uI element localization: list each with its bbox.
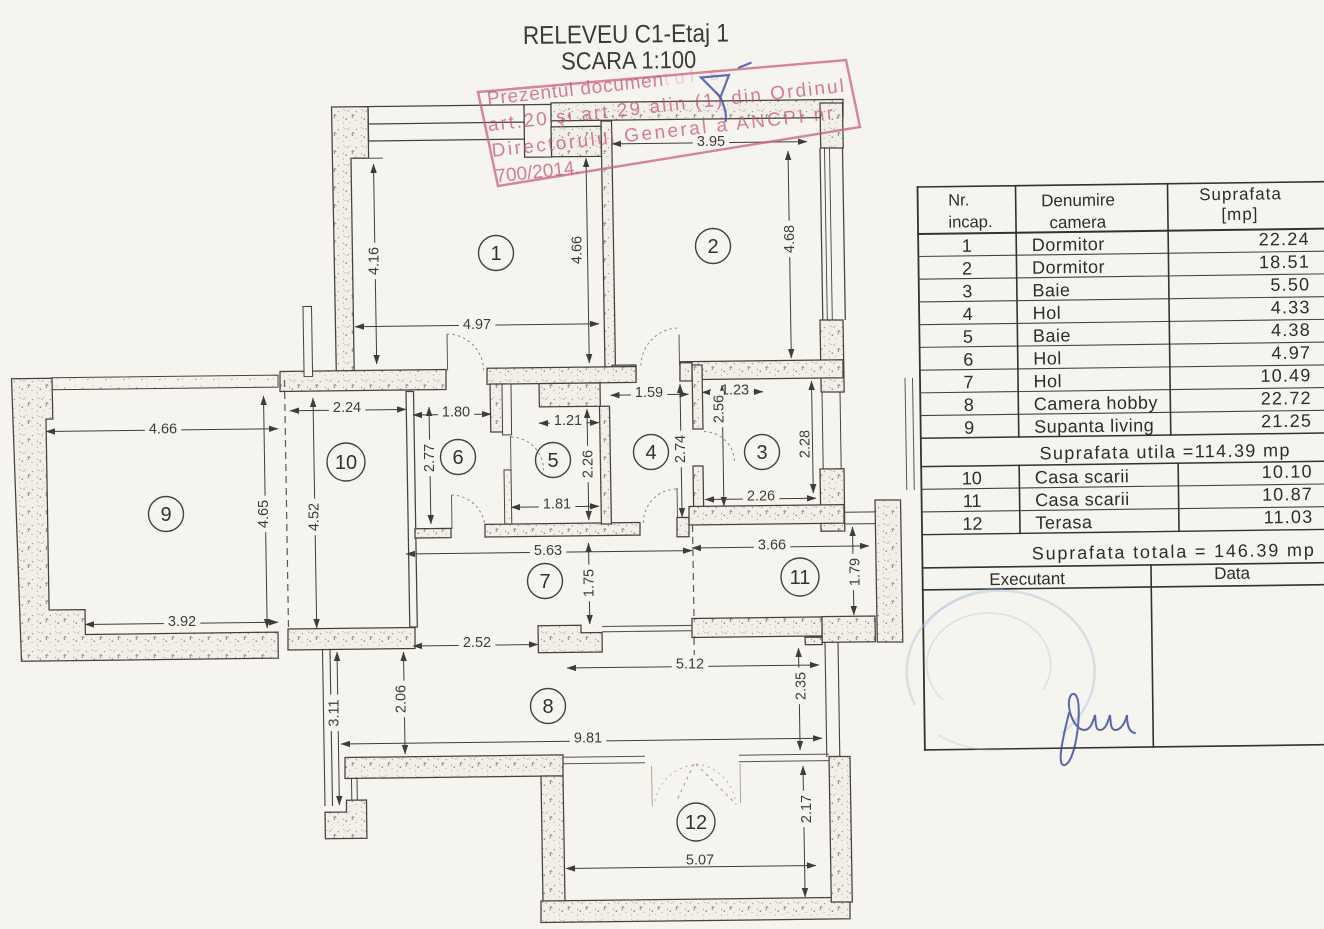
- svg-text:3.92: 3.92: [168, 614, 196, 630]
- svg-text:1.75: 1.75: [582, 569, 598, 597]
- svg-text:Hol: Hol: [1033, 348, 1062, 368]
- svg-text:Denumire: Denumire: [1041, 190, 1115, 210]
- svg-text:3: 3: [756, 442, 767, 464]
- svg-text:22.24: 22.24: [1259, 229, 1310, 250]
- svg-text:2.35: 2.35: [794, 672, 810, 700]
- svg-text:11: 11: [963, 491, 982, 511]
- svg-text:5.63: 5.63: [534, 543, 562, 559]
- svg-text:5.12: 5.12: [676, 657, 704, 673]
- svg-text:3: 3: [962, 281, 972, 301]
- svg-text:7: 7: [963, 372, 973, 392]
- svg-text:camera: camera: [1049, 213, 1106, 233]
- svg-text:4: 4: [645, 442, 656, 464]
- svg-text:2.56: 2.56: [712, 395, 728, 423]
- svg-text:5.50: 5.50: [1270, 274, 1310, 295]
- svg-text:Suprafata totala = 146.39 mp: Suprafata totala = 146.39 mp: [1032, 540, 1314, 564]
- svg-text:Dormitor: Dormitor: [1032, 234, 1105, 255]
- svg-text:Baie: Baie: [1032, 280, 1070, 300]
- svg-text:11: 11: [790, 567, 811, 589]
- svg-text:11.03: 11.03: [1264, 507, 1314, 528]
- svg-text:1.79: 1.79: [848, 558, 864, 586]
- svg-text:2.77: 2.77: [422, 444, 438, 472]
- svg-text:4.33: 4.33: [1271, 297, 1311, 318]
- svg-text:2.17: 2.17: [799, 795, 815, 823]
- svg-text:2: 2: [707, 236, 718, 258]
- svg-text:4.68: 4.68: [782, 225, 798, 253]
- svg-text:4.65: 4.65: [256, 500, 272, 528]
- svg-text:4: 4: [963, 304, 973, 324]
- svg-text:2.52: 2.52: [463, 635, 491, 651]
- svg-text:4.97: 4.97: [1271, 343, 1311, 364]
- svg-text:10: 10: [962, 468, 982, 488]
- svg-text:RELEVEU C1-Etaj 1: RELEVEU C1-Etaj 1: [523, 19, 729, 50]
- svg-text:10: 10: [335, 452, 357, 474]
- svg-text:2.74: 2.74: [673, 435, 689, 463]
- svg-text:12: 12: [685, 812, 707, 834]
- svg-text:5: 5: [547, 450, 558, 472]
- svg-text:9: 9: [160, 504, 171, 526]
- svg-text:incap.: incap.: [948, 213, 992, 232]
- svg-text:2.06: 2.06: [394, 685, 410, 713]
- svg-text:2.28: 2.28: [798, 430, 814, 458]
- svg-text:9: 9: [964, 418, 974, 438]
- svg-text:22.72: 22.72: [1261, 388, 1312, 409]
- svg-text:4.66: 4.66: [149, 422, 177, 438]
- svg-text:Dormitor: Dormitor: [1032, 257, 1105, 278]
- svg-text:3.11: 3.11: [327, 699, 343, 726]
- svg-text:12: 12: [962, 514, 982, 534]
- svg-text:Baie: Baie: [1033, 325, 1071, 345]
- svg-text:[mp]: [mp]: [1221, 205, 1258, 224]
- svg-text:9.81: 9.81: [574, 731, 602, 747]
- svg-text:5.07: 5.07: [686, 853, 714, 869]
- svg-text:18.51: 18.51: [1259, 252, 1310, 273]
- svg-text:2: 2: [962, 258, 972, 278]
- svg-text:6: 6: [963, 349, 973, 369]
- svg-text:1: 1: [490, 243, 501, 265]
- svg-text:1.21: 1.21: [554, 413, 582, 429]
- svg-text:Suprafata utila =114.39 mp: Suprafata utila =114.39 mp: [1039, 440, 1289, 463]
- svg-text:4.38: 4.38: [1271, 320, 1311, 341]
- svg-text:6: 6: [452, 447, 463, 469]
- svg-text:10.10: 10.10: [1262, 461, 1313, 482]
- svg-text:8: 8: [964, 395, 974, 415]
- svg-text:10.49: 10.49: [1260, 365, 1311, 386]
- svg-text:1.80: 1.80: [442, 405, 470, 421]
- svg-text:2.26: 2.26: [580, 450, 596, 478]
- svg-text:10.87: 10.87: [1262, 484, 1313, 505]
- svg-text:Hol: Hol: [1033, 303, 1062, 323]
- svg-text:8: 8: [542, 696, 553, 718]
- svg-text:4.16: 4.16: [367, 247, 383, 275]
- svg-text:Hol: Hol: [1033, 371, 1062, 391]
- svg-text:Camera hobby: Camera hobby: [1034, 392, 1158, 414]
- svg-text:7: 7: [539, 571, 550, 593]
- svg-text:Supanta living: Supanta living: [1034, 415, 1154, 437]
- svg-text:Casa scarii: Casa scarii: [1035, 489, 1130, 510]
- svg-text:5: 5: [963, 327, 973, 347]
- svg-text:Data: Data: [1214, 564, 1251, 583]
- svg-text:3.66: 3.66: [758, 538, 786, 554]
- svg-text:2.26: 2.26: [747, 489, 775, 505]
- svg-text:4.66: 4.66: [570, 236, 586, 264]
- svg-text:4.52: 4.52: [306, 503, 322, 531]
- svg-text:2.24: 2.24: [333, 400, 361, 416]
- svg-text:Executant: Executant: [989, 569, 1065, 589]
- svg-text:1.81: 1.81: [543, 497, 571, 513]
- svg-text:4.97: 4.97: [463, 317, 491, 333]
- svg-text:21.25: 21.25: [1261, 411, 1312, 432]
- svg-text:Terasa: Terasa: [1035, 512, 1093, 533]
- svg-text:Suprafata: Suprafata: [1199, 184, 1282, 204]
- svg-text:Casa scarii: Casa scarii: [1035, 466, 1130, 487]
- svg-text:Nr.: Nr.: [948, 191, 969, 209]
- svg-text:1: 1: [962, 236, 972, 256]
- svg-text:1.59: 1.59: [635, 385, 663, 401]
